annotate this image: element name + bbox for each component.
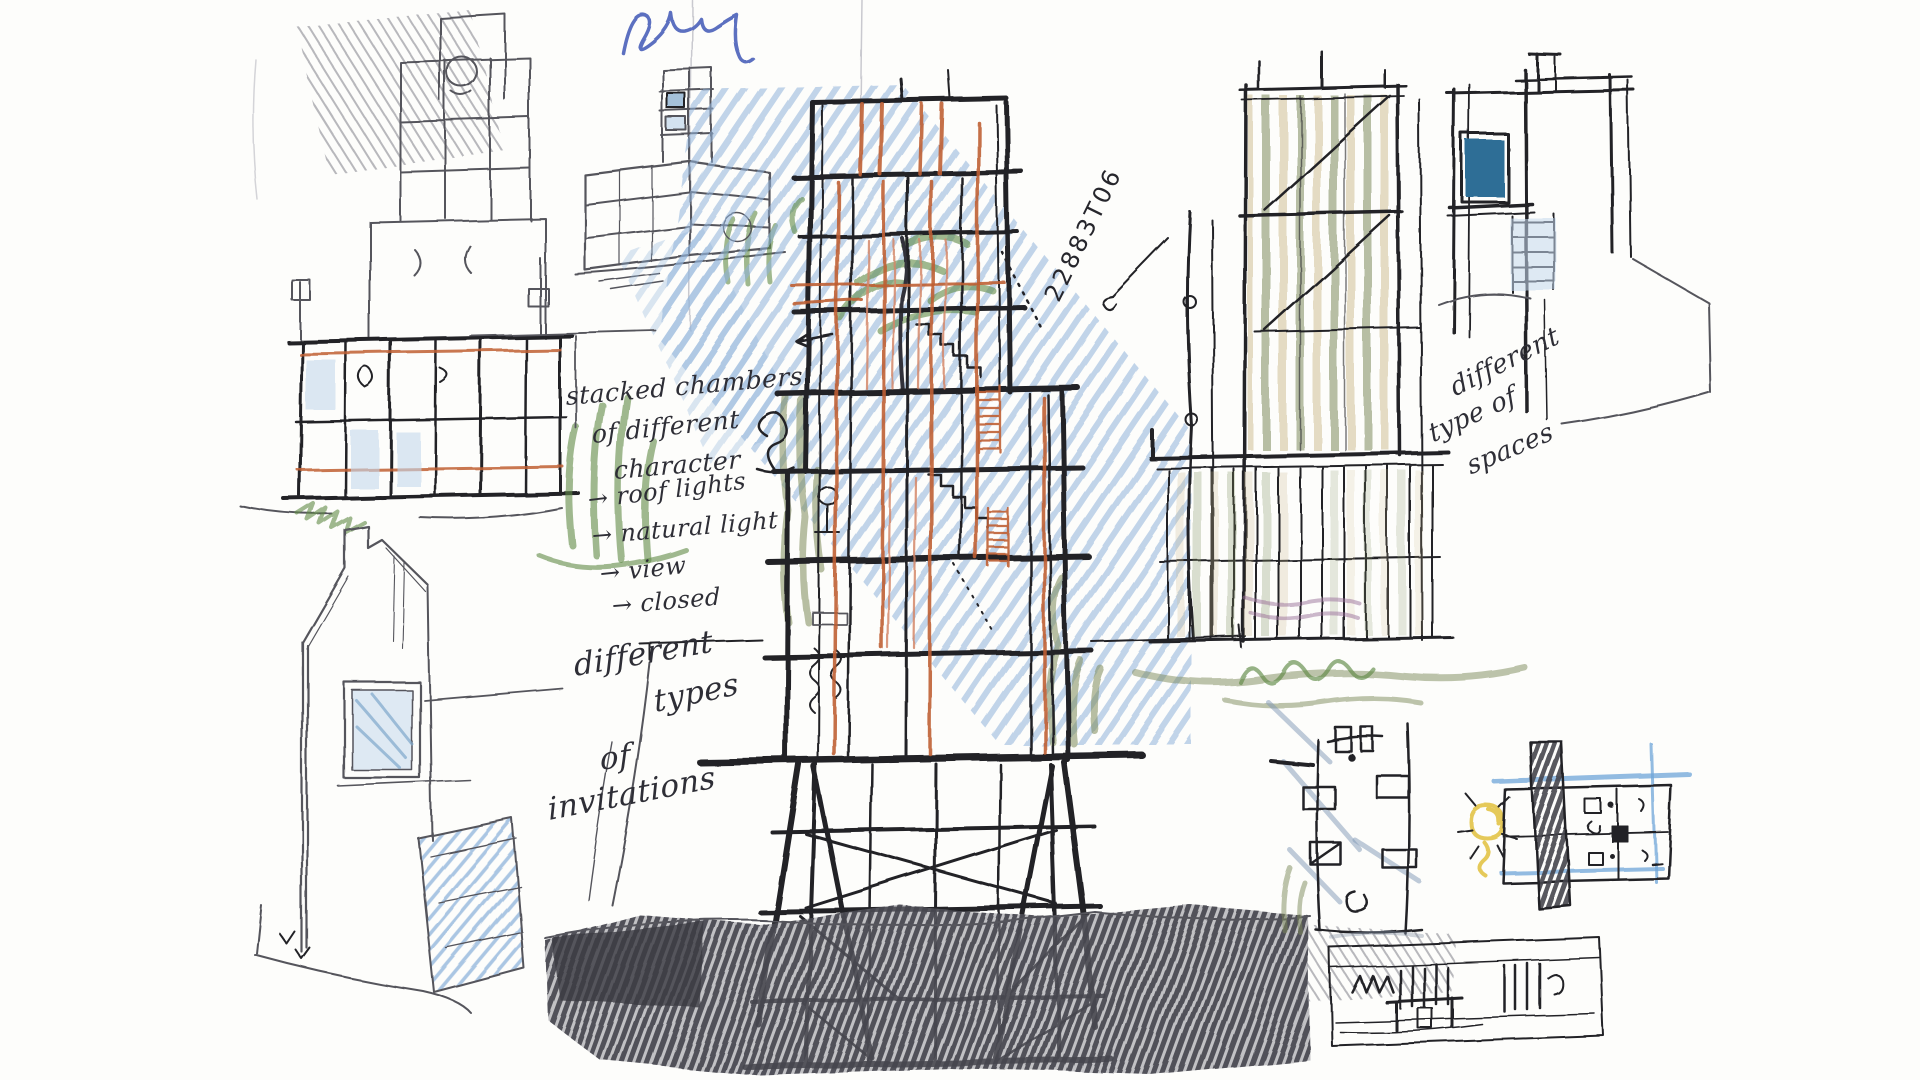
note-invitations-line2: types (652, 666, 740, 720)
sun-doodle (1458, 794, 1516, 874)
plan-sketch-b (1495, 742, 1690, 908)
sketch-canvas (0, 0, 1920, 1080)
tower-base-structure (744, 762, 1112, 1066)
tower-foliage (792, 198, 992, 330)
arrow-item-label: natural light (620, 506, 778, 548)
page-crease-lines (253, 0, 862, 330)
note-stacked-chambers-line1: stacked chambers (566, 361, 804, 411)
perspective-building-sketch (575, 68, 785, 290)
sketchbook-page: stacked chambers of different character … (0, 0, 1920, 1080)
right-tower-posts (1168, 465, 1432, 640)
note-reference-code: 22883T06 (1039, 163, 1128, 306)
code-leader-arrow (1102, 238, 1168, 310)
plan-sketch-a (1268, 702, 1422, 934)
arrow-glyph: → (592, 520, 613, 550)
ground-hatch (545, 905, 1458, 1075)
note-stacked-chambers-line2: of different (591, 404, 740, 449)
note-arrow-view: →view (600, 551, 687, 588)
arrow-glyph: → (587, 483, 609, 514)
right-tower-ground-scrub (1135, 668, 1525, 706)
house-facade-sketch (255, 526, 650, 1013)
arrow-item-label: closed (640, 582, 721, 617)
arrow-glyph: → (612, 590, 633, 620)
left-arrow (796, 334, 832, 346)
note-arrow-closed: →closed (612, 582, 721, 620)
note-arrow-natural-light: →natural light (592, 506, 779, 550)
note-invitations-line4: invitations (546, 759, 717, 828)
blue-pen-scribble (622, 12, 752, 61)
arrow-item-label: view (628, 551, 687, 585)
note-invitations-line3: of (599, 737, 632, 778)
room-elevation-sketch (1330, 933, 1604, 1046)
arrow-glyph: → (600, 558, 621, 588)
main-tower-sketch (640, 70, 1246, 1066)
